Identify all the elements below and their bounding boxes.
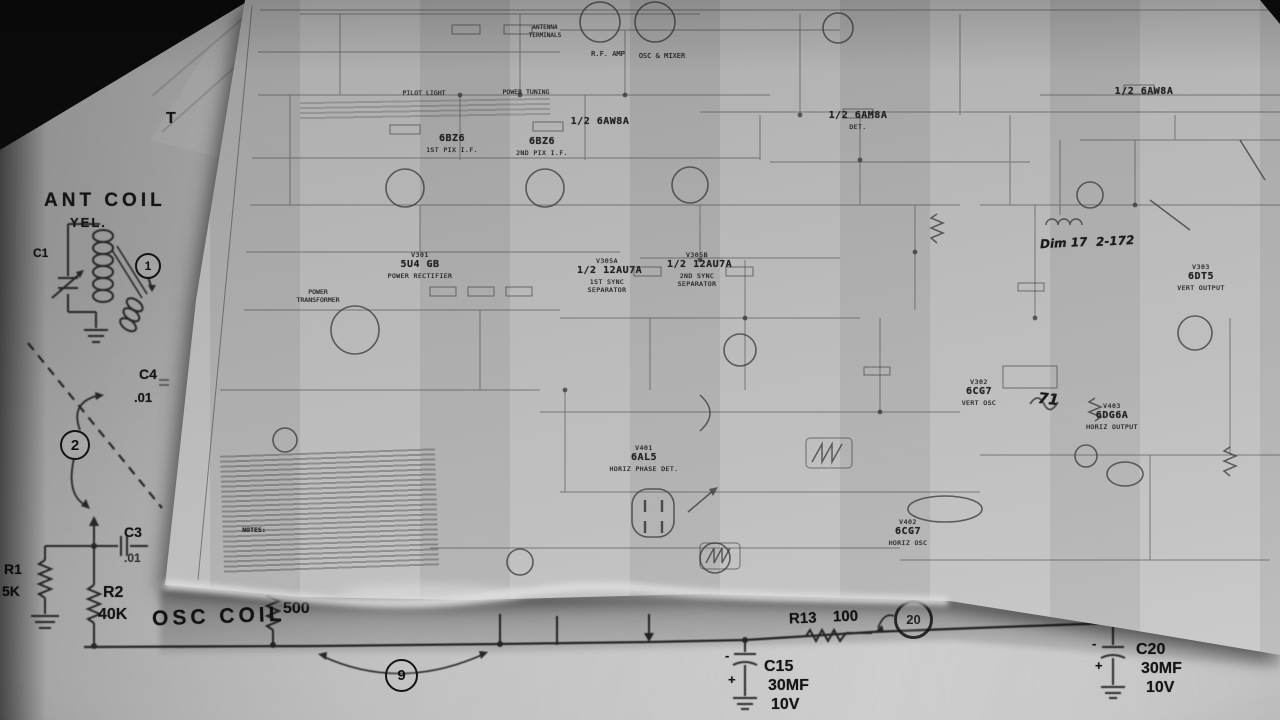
pilot-light-label: PILOT LIGHT <box>402 89 445 97</box>
tube-label-5u4gb: V301 5U4 GB POWER RECTIFIER <box>385 251 455 280</box>
handwritten-mark: 71 <box>1037 389 1060 409</box>
tube-label-6al5: V401 6AL5 HORIZ PHASE DET. <box>609 444 679 473</box>
antenna-terminals-label: ANTENNA TERMINALS <box>520 24 570 40</box>
tube-label-6bz6-2: 6BZ6 2ND PIX I.F. <box>507 136 577 157</box>
printed-circuit-mesh <box>0 0 1280 720</box>
power-tuning-label: POWER TUNING <box>503 88 550 96</box>
tube-label-12au7a-1: V305A 1/2 12AU7A 1ST SYNC SEPARATOR <box>577 257 637 294</box>
notes-heading: NOTES: <box>242 526 265 534</box>
handwritten-dim-note: Dim 17 <box>1040 235 1088 251</box>
notes-fine-print <box>220 448 439 573</box>
rf-amp-label: R.F. AMP <box>591 50 625 58</box>
power-transformer-label: POWER TRANSFORMER <box>289 288 347 305</box>
photo-frame: T ANT COIL YEL. C1 1 C4 .01 2 C3 .01 R1 … <box>0 0 1280 720</box>
tube-label-6aw8a-1: 1/2 6AW8A <box>565 116 635 129</box>
osc-mixer-label: OSC & MIXER <box>639 52 685 60</box>
tube-label-6cg7-vert: V302 6CG7 VERT OSC <box>944 378 1014 407</box>
tube-label-12au7a-2: V305B 1/2 12AU7A 2ND SYNC SEPARATOR <box>667 251 727 288</box>
tube-label-6bz6-1: 6BZ6 1ST PIX I.F. <box>417 133 487 154</box>
tube-label-6dg6a: V403 6DG6A HORIZ OUTPUT <box>1072 402 1152 431</box>
tube-label-6cg7-horiz: V402 6CG7 HORIZ OSC <box>873 518 943 547</box>
handwritten-ref-note: 2-172 <box>1096 233 1135 249</box>
tube-label-6aw8a-2: 1/2 6AW8A <box>1109 86 1179 99</box>
tube-label-6dt5: V303 6DT5 VERT OUTPUT <box>1174 263 1228 292</box>
tube-label-6am8a: 1/2 6AM8A DET. <box>823 110 893 131</box>
tv-schematic-sheet: NOTES: R.F. AMP OSC & MIXER ANTENNA TERM… <box>0 0 1280 720</box>
